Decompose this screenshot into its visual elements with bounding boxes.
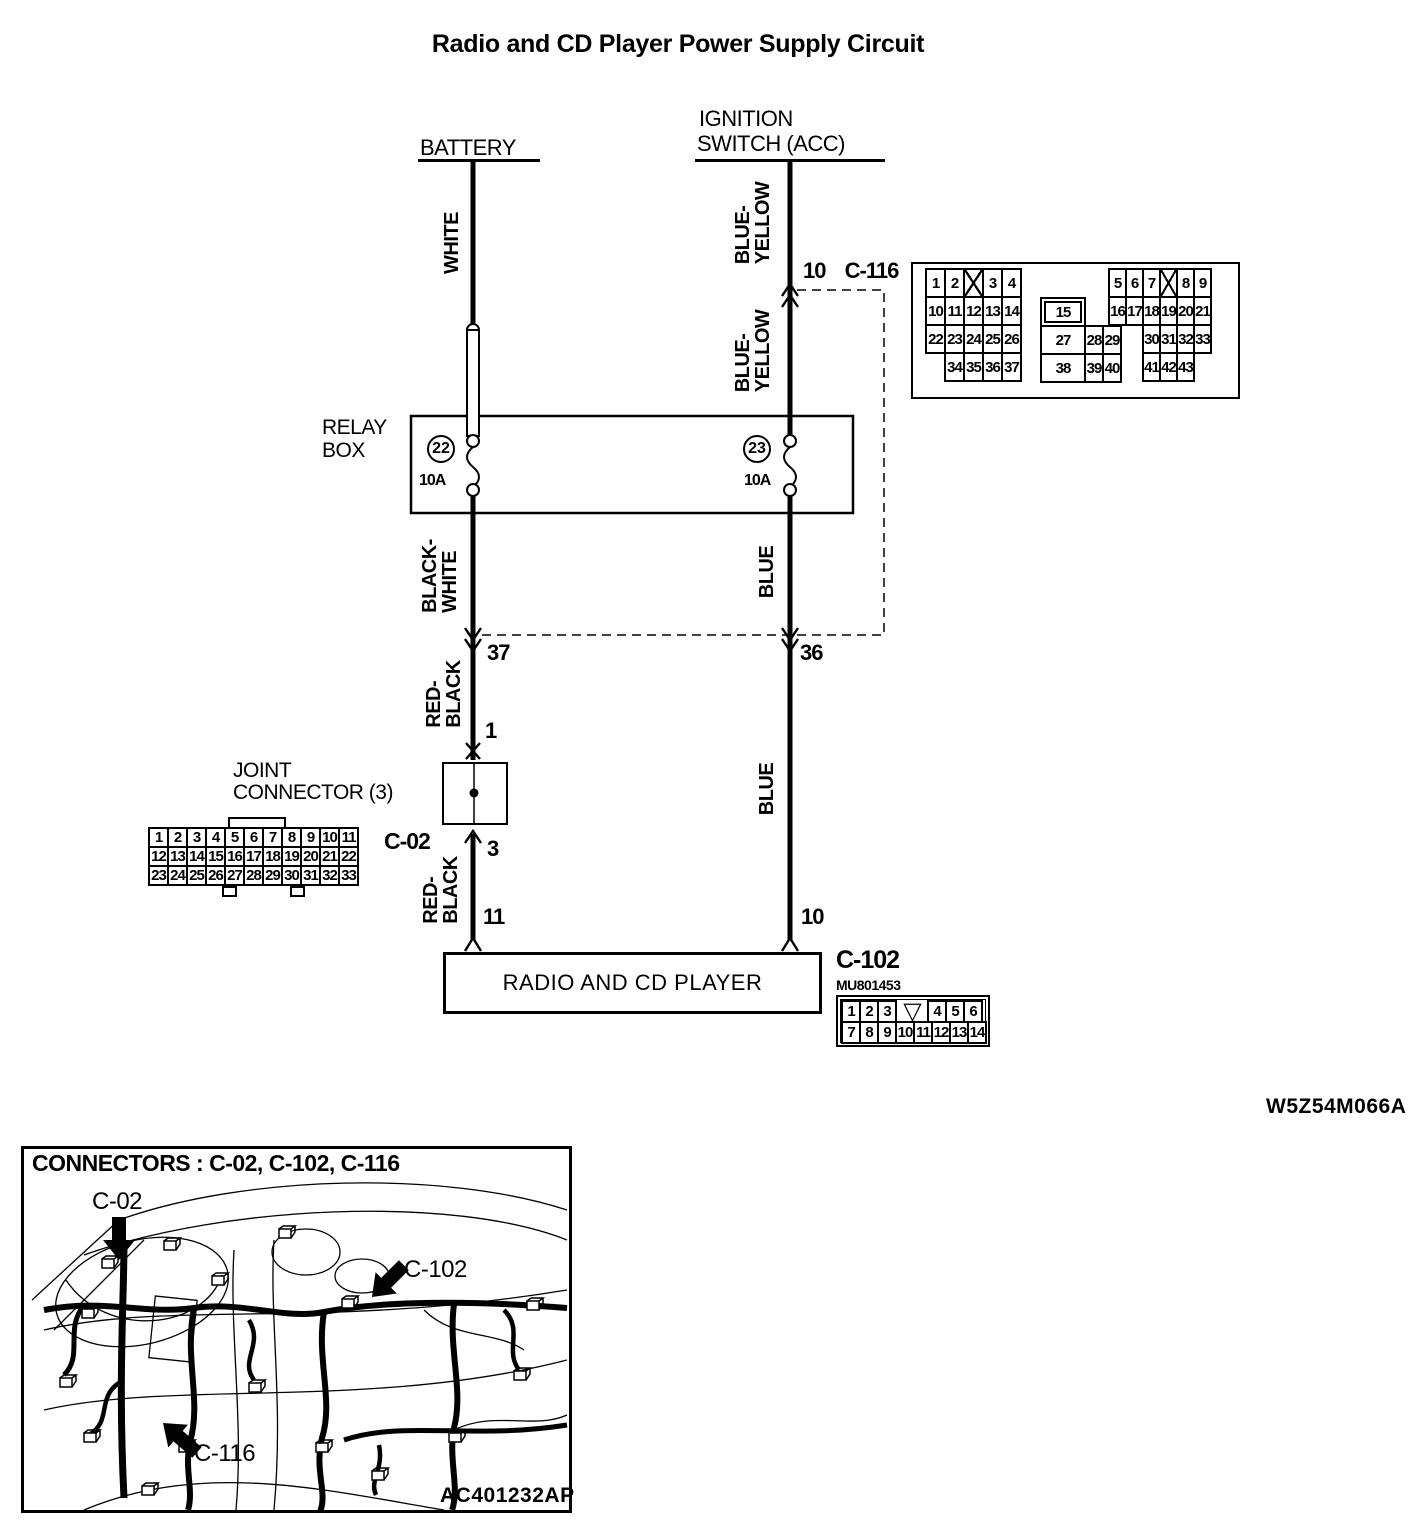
pin-cell: 19 — [281, 846, 302, 867]
wire-label-blue-yellow-lower: BLUE- YELLOW — [733, 310, 773, 393]
wire-label-line: BLUE — [757, 763, 777, 815]
pin-cell: 31 — [300, 865, 321, 886]
pin-cell: 1 — [841, 1000, 861, 1023]
connector-name-c02: C-02 — [384, 828, 430, 855]
fuse-22-rating: 10A — [419, 472, 445, 490]
ignition-label-line2: SWITCH (ACC) — [697, 132, 845, 155]
pin-cell: 16 — [224, 846, 245, 867]
pin-cell: 29 — [262, 865, 283, 886]
inset-image-code: AC401232AP — [440, 1484, 575, 1508]
wire-label-line: BLUE — [757, 546, 777, 598]
battery-underline — [418, 159, 540, 162]
pin-cell: 4 — [205, 827, 226, 848]
connector-name-c116: C-116 — [845, 258, 899, 283]
wire-label-white-text: WHITE — [442, 212, 462, 274]
pin-cell: 4 — [1001, 268, 1022, 298]
pin-cell: 28 — [1084, 325, 1104, 355]
pin-cell: 26 — [1001, 324, 1022, 354]
pin-cell: 27 — [1040, 325, 1086, 355]
joint-connector-box — [442, 762, 508, 825]
c102-grid: 1234567891011121314 — [841, 1000, 985, 1042]
pin-cell: 22 — [925, 324, 946, 354]
connector-name-c102: C-102 — [836, 946, 899, 975]
pin-number: 10 — [803, 258, 825, 283]
pin-cell: 34 — [944, 352, 965, 382]
fuse-22-number: 22 — [427, 435, 455, 463]
pin-cell: 5 — [224, 827, 245, 848]
pin-cell: 1 — [925, 268, 946, 298]
pin-cell: 9 — [300, 827, 321, 848]
callout-arrows — [103, 1217, 414, 1464]
pin-cell: 43 — [1176, 352, 1195, 382]
pin-cell: 3 — [877, 1000, 897, 1023]
pin-cell: 6 — [963, 1000, 983, 1023]
ignition-label-line1: IGNITION — [699, 107, 793, 130]
pin-row: 7891011121314 — [841, 1021, 985, 1042]
pin-cell: 2 — [859, 1000, 879, 1023]
pin-cell: 27 — [224, 865, 245, 886]
pin-cell — [963, 268, 984, 298]
pin-cell: 35 — [963, 352, 984, 382]
pin-row: 1011121314 — [925, 296, 1020, 324]
pin-10-c116-label: 10 C-116 — [803, 258, 898, 284]
wires — [473, 162, 790, 940]
pin-cell: 14 — [186, 846, 207, 867]
relay-box-label-line1: RELAY — [322, 416, 387, 439]
c116-right-block: 5678916171819202130313233414243 — [1108, 268, 1210, 380]
diagram-code: W5Z54M066A — [1266, 1095, 1406, 1119]
pin-cell: 37 — [1001, 352, 1022, 382]
pin-cell: 4 — [927, 1000, 947, 1023]
battery-label: BATTERY — [420, 136, 516, 159]
inset-c02-label: C-02 — [92, 1188, 142, 1216]
wire-label-line: BLACK — [444, 660, 464, 728]
pin-cell: 12 — [963, 296, 984, 326]
pin-row: 34353637 — [925, 352, 1020, 380]
pin-cell: 7 — [262, 827, 283, 848]
pin-row: 30313233 — [1108, 324, 1210, 352]
pin-cell: 17 — [243, 846, 264, 867]
wire-label-black-white: BLACK- WHITE — [420, 539, 460, 613]
pin-cell: 10 — [895, 1021, 915, 1044]
relay-box-label-line2: BOX — [322, 439, 387, 462]
ignition-underline — [695, 159, 885, 162]
c02-bottom-tab — [290, 886, 305, 897]
pin-row: 1234567891011 — [148, 827, 357, 846]
c102-inner-frame: 1234567891011121314 — [840, 999, 986, 1043]
pin-cell: 32 — [319, 865, 340, 886]
radio-cd-player-box: RADIO AND CD PLAYER — [443, 952, 822, 1014]
wire-label-red-black-upper: RED- BLACK — [424, 660, 464, 728]
dashboard-harness-illustration — [24, 1180, 569, 1510]
pin-cell: 2 — [167, 827, 188, 848]
pin-cell: 24 — [963, 324, 984, 354]
pin-37: 37 — [487, 640, 509, 666]
pin-cell: 13 — [949, 1021, 969, 1044]
joint-connector-label: JOINT CONNECTOR (3) — [233, 760, 393, 804]
pin-cell: 30 — [281, 865, 302, 886]
pin-cell: 28 — [243, 865, 264, 886]
pin-cell: 11 — [944, 296, 965, 326]
c02-pin-diagram: 1234567891011121314151617181920212223242… — [148, 827, 357, 884]
pin-cell: 24 — [167, 865, 188, 886]
pin-cell: 14 — [967, 1021, 987, 1044]
pin-cell: 33 — [338, 865, 359, 886]
pin-cell: 13 — [167, 846, 188, 867]
c116-connector-boundary — [474, 290, 884, 635]
page-title: Radio and CD Player Power Supply Circuit — [432, 30, 924, 59]
pin-cell: 6 — [243, 827, 264, 848]
wire-label-line: BLUE- — [733, 182, 753, 265]
wire-label-blue-yellow-upper: BLUE- YELLOW — [733, 182, 773, 265]
pin-cell: 26 — [205, 865, 226, 886]
pin-10-radio: 10 — [801, 904, 823, 930]
fuse-22-symbol — [467, 435, 479, 496]
pin-cell: 7 — [841, 1021, 861, 1044]
pin-cell: 2 — [944, 268, 965, 298]
inset-c116-label: C-116 — [194, 1440, 255, 1468]
pin-cell: 10 — [319, 827, 340, 848]
pin-3: 3 — [487, 836, 498, 862]
wire-label-line: BLACK — [441, 856, 461, 924]
pin-row: 123456 — [841, 1000, 985, 1021]
wire-label-blue-upper: BLUE — [757, 546, 777, 598]
fuse-23-symbol — [784, 435, 796, 496]
inset-heading: CONNECTORS : C-02, C-102, C-116 — [32, 1150, 400, 1177]
fuse-23-number: 23 — [743, 435, 771, 463]
wire-label-line: YELLOW — [753, 182, 773, 265]
wire-label-line: RED- — [421, 856, 441, 924]
pin-cell: 12 — [931, 1021, 951, 1044]
wire-label-line: RED- — [424, 660, 444, 728]
wire-label-line: BLUE- — [733, 310, 753, 393]
pin-row: 56789 — [1108, 268, 1210, 296]
pin-cell: 25 — [186, 865, 207, 886]
pin-row: 2223242526 — [925, 324, 1020, 352]
pin-cell: 9 — [877, 1021, 897, 1044]
pin-cell: 3 — [982, 268, 1003, 298]
pin-cell: 21 — [319, 846, 340, 867]
wire-label-red-black-lower: RED- BLACK — [421, 856, 461, 924]
inset-c102-label: C-102 — [404, 1256, 467, 1284]
pin-cell: 15 — [205, 846, 226, 867]
pin-cell: 5 — [945, 1000, 965, 1023]
pin-cell: 8 — [859, 1021, 879, 1044]
pin-cell: 15 — [1040, 297, 1086, 327]
wire-label-line: WHITE — [440, 539, 460, 613]
pin-cell: 11 — [338, 827, 359, 848]
joint-label-line2: CONNECTOR (3) — [233, 782, 393, 804]
pin-1: 1 — [485, 718, 496, 744]
relay-box-label: RELAY BOX — [322, 416, 387, 462]
joint-label-line1: JOINT — [233, 760, 393, 782]
c02-bottom-tab — [222, 886, 237, 897]
c102-pin-diagram: 1234567891011121314 — [836, 995, 990, 1047]
pin-cell: 11 — [913, 1021, 933, 1044]
pin-cell: 13 — [982, 296, 1003, 326]
pin-cell: 18 — [262, 846, 283, 867]
pin-cell: 8 — [281, 827, 302, 848]
pin-11: 11 — [483, 904, 504, 930]
pin-cell: 38 — [1040, 353, 1086, 383]
pin-cell: 22 — [338, 846, 359, 867]
pin-cell: 21 — [1193, 296, 1212, 326]
wire-label-line: BLACK- — [420, 539, 440, 613]
pin-cell: 9 — [1193, 268, 1212, 298]
pin-row: 1213141516171819202122 — [148, 846, 357, 865]
fuse-23-rating: 10A — [744, 472, 770, 490]
pin-cell: 36 — [982, 352, 1003, 382]
pin-cell: 14 — [1001, 296, 1022, 326]
wire-label-line: YELLOW — [753, 310, 773, 393]
pin-row: 2324252627282930313233 — [148, 865, 357, 884]
wire-label-white: WHITE — [442, 212, 462, 274]
pin-row: 1234 — [925, 268, 1020, 296]
wire-label-blue-lower: BLUE — [757, 763, 777, 815]
pin-row: 161718192021 — [1108, 296, 1210, 324]
pin-cell — [895, 1000, 929, 1023]
pin-row: 414243 — [1108, 352, 1210, 380]
pin-cell: 12 — [148, 846, 169, 867]
wiring-diagram-page: Radio and CD Player Power Supply Circuit… — [0, 0, 1408, 1532]
pin-36: 36 — [800, 640, 822, 666]
pin-cell: 23 — [944, 324, 965, 354]
pin-cell: 20 — [300, 846, 321, 867]
pin-cell: 1 — [148, 827, 169, 848]
pin-cell: 33 — [1193, 324, 1212, 354]
fusible-link — [467, 324, 479, 436]
pin-cell: 10 — [925, 296, 946, 326]
connector-cubes — [60, 1226, 543, 1495]
pin-cell: 23 — [148, 865, 169, 886]
c116-left-block: 12341011121314222324252634353637 — [925, 268, 1020, 380]
pin-cell: 3 — [186, 827, 207, 848]
pin-cell: 25 — [982, 324, 1003, 354]
c102-part-number: MU801453 — [836, 977, 901, 993]
pin-cell: 39 — [1084, 353, 1104, 383]
